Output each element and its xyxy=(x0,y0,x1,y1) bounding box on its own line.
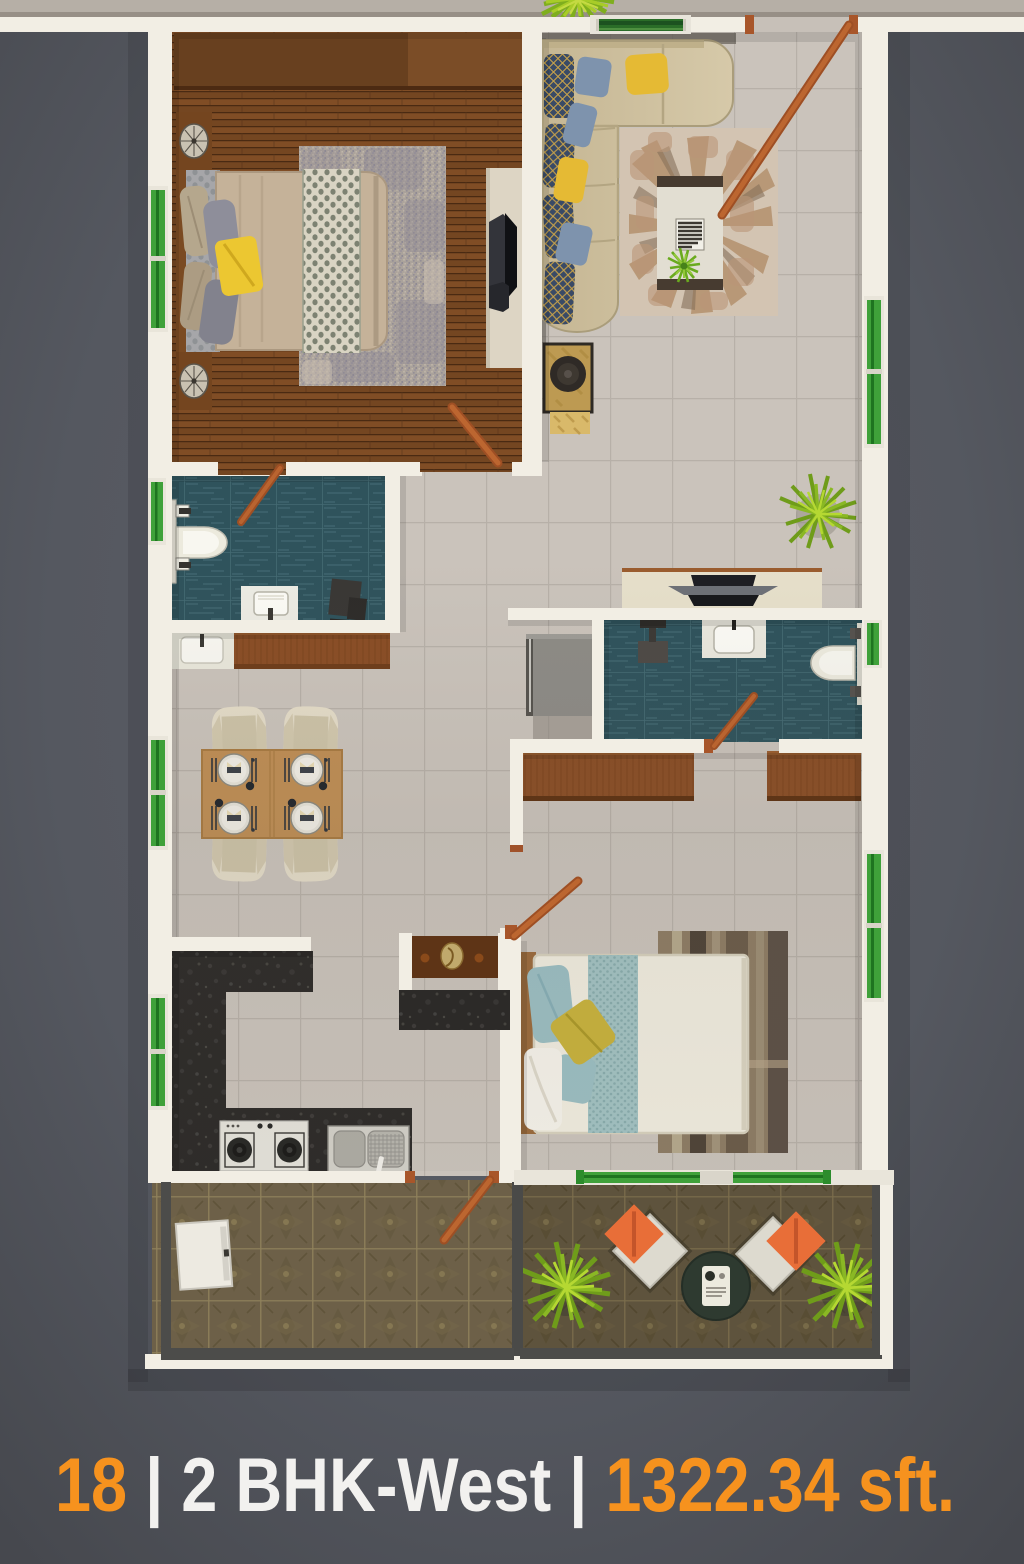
svg-text:18 | 2 BHK-West | 1322.34 sft.: 18 | 2 BHK-West | 1322.34 sft. xyxy=(55,1443,955,1529)
